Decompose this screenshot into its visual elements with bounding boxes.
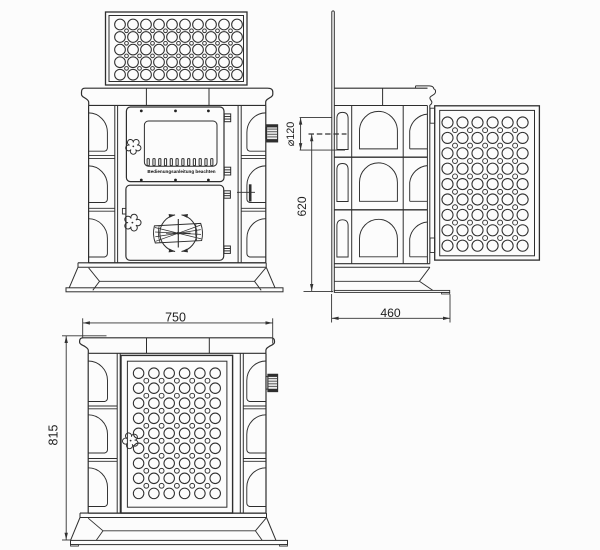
svg-text:Bedienungsanleitung beachten: Bedienungsanleitung beachten [147, 169, 215, 174]
svg-text:750: 750 [165, 311, 186, 325]
svg-text:⌀120: ⌀120 [285, 122, 297, 147]
svg-text:460: 460 [380, 306, 401, 320]
svg-text:815: 815 [46, 425, 60, 446]
svg-text:620: 620 [295, 196, 309, 216]
